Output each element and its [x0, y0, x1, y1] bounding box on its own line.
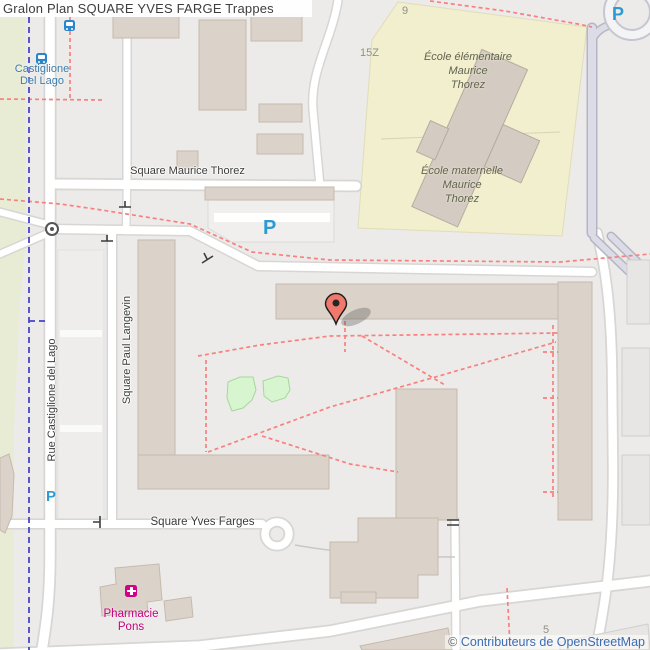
school-elementaire-label: École élémentaire Maurice Thorez [392, 50, 544, 92]
school-elementaire-line2: Maurice [392, 64, 544, 78]
school-maternelle-line1: École maternelle [386, 164, 538, 178]
transit-stop-line2: Del Lago [6, 75, 78, 87]
house-number-15z: 15Z [360, 47, 379, 59]
bus-stop-icon [64, 20, 75, 31]
school-maternelle-line3: Thorez [386, 192, 538, 206]
street-label-paul-langevin: Square Paul Langevin [121, 296, 133, 404]
house-number-9: 9 [402, 5, 408, 17]
parking-symbol-north: P [263, 218, 276, 238]
pharmacy-icon [125, 585, 137, 597]
copyright-symbol: © [448, 635, 457, 649]
map-canvas [0, 0, 650, 650]
street-label-castiglione-del-lago: Rue Castiglione del Lago [46, 339, 58, 462]
parking-symbol-roundabout: P [612, 5, 624, 23]
street-label-maurice-thorez: Square Maurice Thorez [105, 165, 270, 177]
school-elementaire-line3: Thorez [392, 78, 544, 92]
parking-symbol-west: P [46, 489, 56, 504]
school-maternelle-label: École maternelle Maurice Thorez [386, 164, 538, 206]
parking-lot-west [58, 250, 104, 522]
osm-attribution-link[interactable]: Contributeurs de OpenStreetMap [461, 635, 645, 649]
pharmacy-label: Pharmacie Pons [92, 608, 170, 633]
map-viewport[interactable]: Gralon Plan SQUARE YVES FARGE Trappes Ca… [0, 0, 650, 650]
school-elementaire-line1: École élémentaire [392, 50, 544, 64]
pharmacy-line1: Pharmacie [92, 608, 170, 621]
street-label-yves-farges: Square Yves Farges [125, 516, 280, 528]
transit-stop-line1: Castiglione [6, 63, 78, 75]
transit-stop-label: Castiglione Del Lago [6, 63, 78, 87]
mini-roundabout-icon [46, 223, 58, 235]
school-maternelle-line2: Maurice [386, 178, 538, 192]
attribution: © Contributeurs de OpenStreetMap [445, 635, 648, 649]
map-title: Gralon Plan SQUARE YVES FARGE Trappes [0, 0, 312, 17]
pharmacy-line2: Pons [92, 621, 170, 634]
